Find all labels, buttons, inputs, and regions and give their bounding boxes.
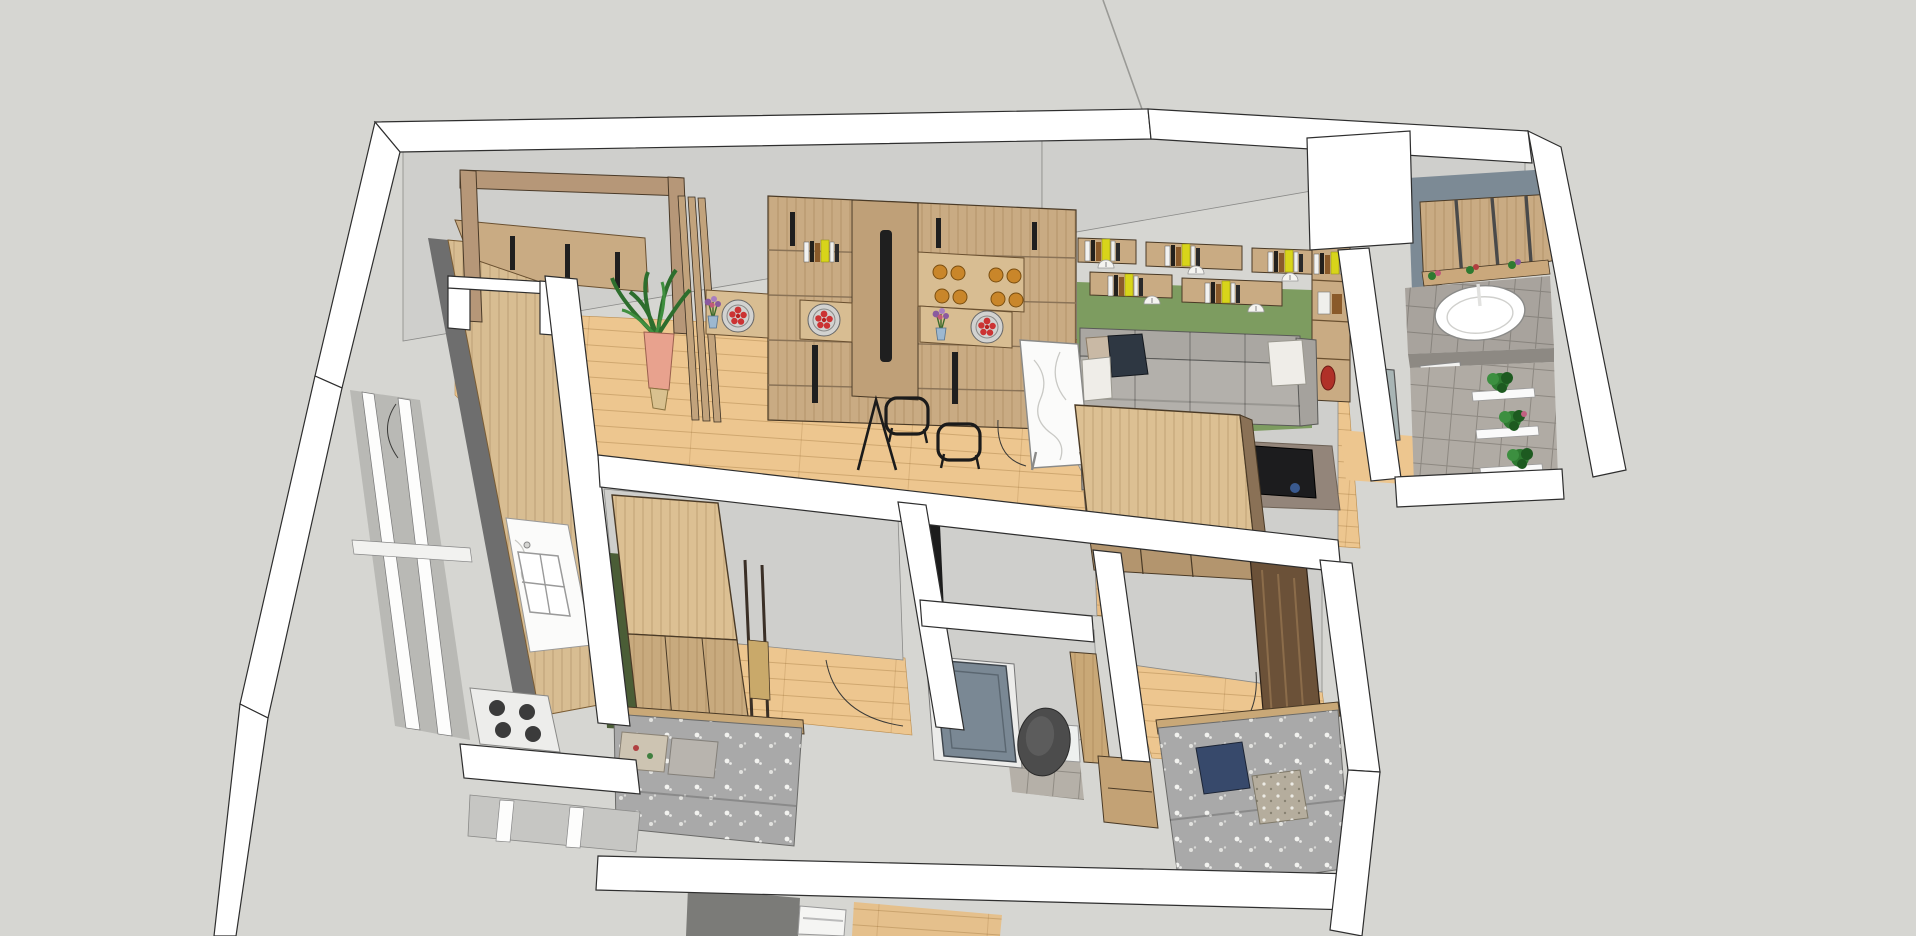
sketchup-viewport[interactable]: [0, 0, 1916, 936]
sink-faucet-stem: [1478, 284, 1480, 306]
pillow-motif-2: [647, 753, 653, 759]
side-table-decor: [1290, 483, 1300, 493]
red-vase: [1321, 366, 1335, 390]
dark-side-table: [1254, 446, 1316, 498]
shelf-flower: [1521, 411, 1527, 417]
books-1: [1085, 239, 1120, 261]
pillow-white-left: [1082, 357, 1112, 401]
yellow-books-top: [804, 240, 839, 262]
bed-1: [614, 706, 804, 846]
wardrobe1-front-grain: [628, 634, 748, 720]
bed1-pillow-gray: [668, 738, 718, 778]
living-utility-column: [1307, 131, 1413, 250]
pillow-navy: [1108, 334, 1148, 377]
books-2: [1165, 244, 1200, 266]
cabinet-slot-b: [565, 244, 570, 280]
plant-pot: [644, 332, 674, 390]
books-3: [1268, 250, 1303, 272]
sink-faucet: [524, 542, 530, 548]
burner-4: [525, 726, 541, 742]
wardrobe1-top-grain: [612, 495, 737, 640]
tall-cabinet-slot: [880, 230, 892, 362]
burner-3: [495, 722, 511, 738]
red-plate-3: [971, 311, 1003, 343]
niche-cups: [918, 252, 1024, 312]
bed-2: [1156, 702, 1350, 892]
pillow-white-right: [1268, 340, 1306, 386]
slot-3: [936, 218, 941, 248]
burner-2: [519, 704, 535, 720]
bed2-pillow-dots: [1252, 770, 1308, 824]
cabinet-slot-a: [510, 236, 515, 270]
books-4: [1108, 274, 1143, 296]
bed2-floral: [1158, 710, 1350, 892]
slot-4: [1032, 222, 1037, 250]
slot-1: [790, 212, 795, 246]
bed2-pillow-blue: [1196, 742, 1250, 794]
box-brown: [1332, 294, 1342, 314]
plant-basket: [650, 388, 668, 410]
slot-5: [952, 352, 958, 404]
gas-stove: [470, 688, 560, 752]
pillow-motif-1: [633, 745, 639, 751]
slot-2: [812, 345, 818, 403]
burner-1: [489, 700, 505, 716]
red-plate-2: [808, 304, 840, 336]
desk-board: [748, 640, 770, 700]
box-white: [1318, 292, 1330, 314]
books-5: [1205, 281, 1240, 303]
red-plate-1: [722, 300, 754, 332]
